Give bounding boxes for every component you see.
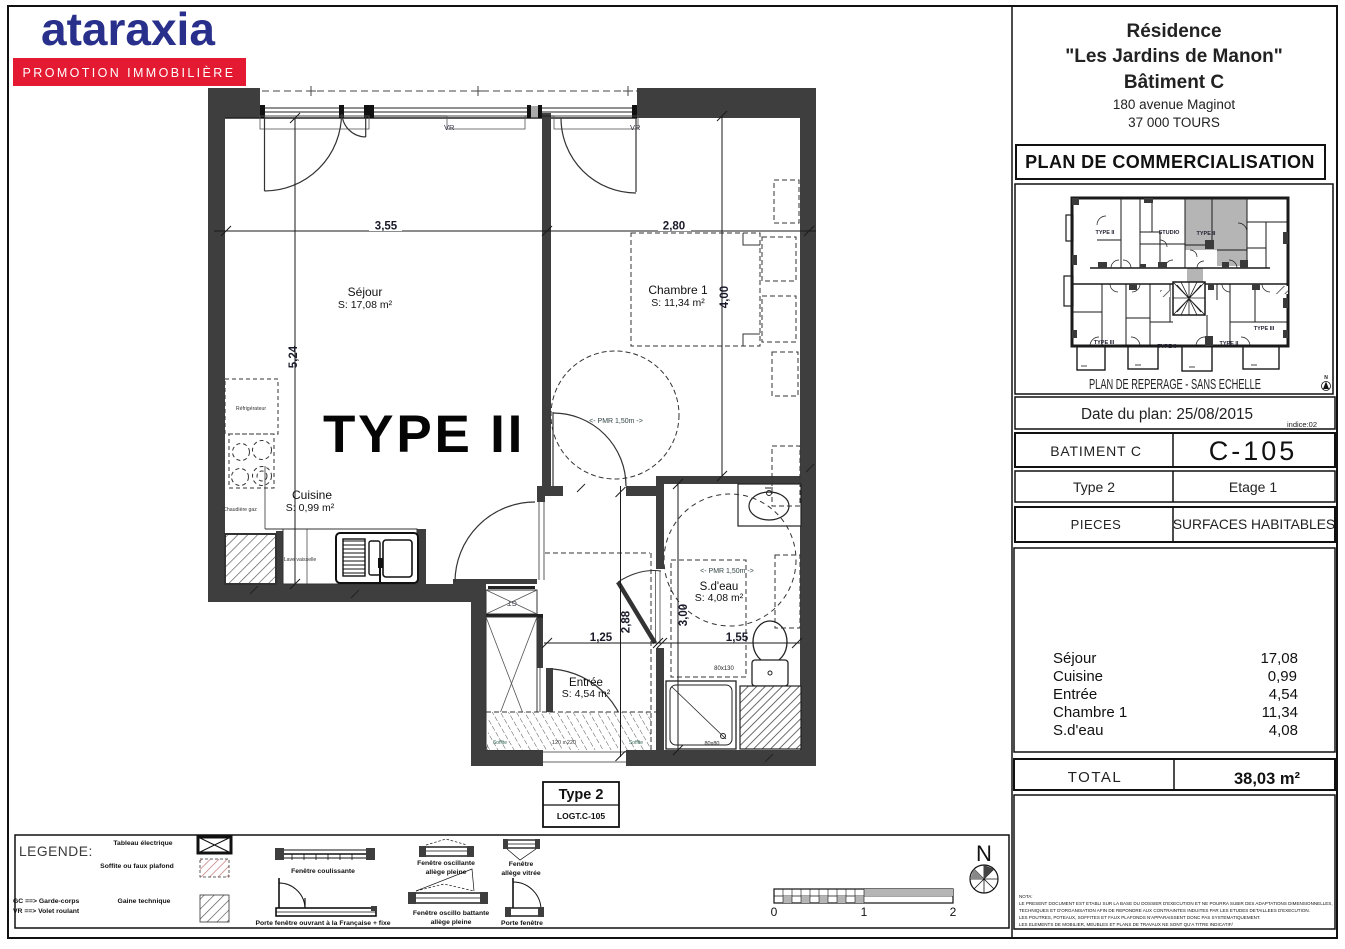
svg-text:SURFACES HABITABLES: SURFACES HABITABLES xyxy=(1173,517,1335,532)
svg-text:Cuisine: Cuisine xyxy=(292,488,332,502)
svg-text:Cuisine: Cuisine xyxy=(1053,668,1103,685)
svg-text:38,03 m²: 38,03 m² xyxy=(1234,770,1301,788)
svg-text:5,24: 5,24 xyxy=(288,345,300,368)
svg-text:80x80: 80x80 xyxy=(705,741,720,747)
svg-text:PROMOTION IMMOBILIÈRE: PROMOTION IMMOBILIÈRE xyxy=(23,65,236,80)
svg-text:Gaine technique: Gaine technique xyxy=(118,898,171,905)
svg-text:S: 0,99 m²: S: 0,99 m² xyxy=(286,502,335,514)
svg-text:Résidence: Résidence xyxy=(1126,21,1221,42)
svg-text:<- PMR 1,50m ->: <- PMR 1,50m -> xyxy=(589,418,643,425)
svg-text:LES POUTRES, POTEAUX, SOFFITES: LES POUTRES, POTEAUX, SOFFITES ET FAUX P… xyxy=(1019,915,1260,920)
svg-text:Chambre 1: Chambre 1 xyxy=(1053,704,1127,721)
svg-text:C-105: C-105 xyxy=(1209,436,1298,466)
svg-text:0: 0 xyxy=(771,905,778,919)
svg-text:Séjour: Séjour xyxy=(348,285,383,299)
svg-text:STUDIO: STUDIO xyxy=(1159,230,1181,236)
svg-text:Lave vaisselle: Lave vaisselle xyxy=(284,557,317,563)
svg-text:S: 11,34 m²: S: 11,34 m² xyxy=(651,297,705,309)
svg-text:Soffite ou faux plafond: Soffite ou faux plafond xyxy=(100,863,174,870)
svg-text:120 x 220: 120 x 220 xyxy=(552,740,576,746)
svg-text:LES ELEMENTS DE MOBILIER, MEUB: LES ELEMENTS DE MOBILIER, MEUBLES ET PLA… xyxy=(1019,922,1234,927)
svg-text:Type 2: Type 2 xyxy=(1073,479,1115,495)
svg-text:S: 17,08 m²: S: 17,08 m² xyxy=(338,299,393,311)
svg-text:TYPE II: TYPE II xyxy=(1158,344,1177,350)
svg-text:Fenêtre oscillante: Fenêtre oscillante xyxy=(417,860,475,867)
svg-text:PIECES: PIECES xyxy=(1071,517,1122,532)
svg-text:4,00: 4,00 xyxy=(719,286,731,308)
svg-text:Tableau électrique: Tableau électrique xyxy=(113,840,172,847)
svg-text:TECHNIQUES ET D'ORGANISATION A: TECHNIQUES ET D'ORGANISATION AFIN DE REP… xyxy=(1019,908,1310,913)
svg-text:Fenêtre: Fenêtre xyxy=(509,861,534,868)
svg-text:VR ==> Volet roulant: VR ==> Volet roulant xyxy=(13,908,80,915)
svg-text:3,55: 3,55 xyxy=(375,221,398,233)
svg-text:4,54: 4,54 xyxy=(1269,686,1298,703)
svg-text:180 avenue Maginot: 180 avenue Maginot xyxy=(1113,97,1236,112)
svg-text:4,08: 4,08 xyxy=(1269,722,1298,739)
svg-text:Porte fenêtre ouvrant à la Fra: Porte fenêtre ouvrant à la Française + f… xyxy=(255,920,390,927)
svg-text:Date du plan: 25/08/2015: Date du plan: 25/08/2015 xyxy=(1081,406,1253,423)
svg-text:Fenêtre coulissante: Fenêtre coulissante xyxy=(291,868,355,875)
svg-text:17,08: 17,08 xyxy=(1260,650,1298,667)
svg-text:<- PMR 1,50m ->: <- PMR 1,50m -> xyxy=(700,568,754,575)
svg-text:TYPE III: TYPE III xyxy=(1254,326,1275,332)
svg-text:TYPE II: TYPE II xyxy=(1096,230,1115,236)
svg-text:Chambre 1: Chambre 1 xyxy=(648,283,708,297)
svg-text:Réfrigérateur: Réfrigérateur xyxy=(236,406,267,412)
svg-text:Type 2: Type 2 xyxy=(559,787,604,803)
svg-text:37 000 TOURS: 37 000 TOURS xyxy=(1128,115,1220,130)
svg-text:LE PRESENT DOCUMENT EST ETABLI: LE PRESENT DOCUMENT EST ETABLI SUR LA BA… xyxy=(1019,901,1333,906)
svg-text:LOGT.C-105: LOGT.C-105 xyxy=(557,811,605,821)
svg-text:2,80: 2,80 xyxy=(663,221,685,233)
svg-text:S: 4,54 m²: S: 4,54 m² xyxy=(562,688,611,700)
svg-text:3,00: 3,00 xyxy=(678,604,690,626)
svg-text:1,25: 1,25 xyxy=(590,632,613,644)
svg-text:allège pleine: allège pleine xyxy=(431,919,472,926)
svg-text:1,55: 1,55 xyxy=(726,632,749,644)
svg-text:NOTA:: NOTA: xyxy=(1019,894,1033,899)
svg-text:Etage 1: Etage 1 xyxy=(1229,479,1277,495)
svg-text:1: 1 xyxy=(861,905,868,919)
svg-text:TYPE III: TYPE III xyxy=(1094,340,1115,346)
svg-text:allège pleine: allège pleine xyxy=(426,869,467,876)
svg-text:Chaudière gaz: Chaudière gaz xyxy=(223,507,257,513)
svg-text:PLAN DE REPERAGE - SANS ECHELL: PLAN DE REPERAGE - SANS ECHELLE xyxy=(1089,377,1261,393)
svg-text:2,88: 2,88 xyxy=(621,610,633,633)
svg-text:Séjour: Séjour xyxy=(1053,650,1096,667)
svg-text:allège vitrée: allège vitrée xyxy=(501,870,541,877)
svg-text:TYPE II: TYPE II xyxy=(1197,231,1216,237)
svg-text:0,99: 0,99 xyxy=(1268,668,1297,685)
svg-text:GC ==> Garde-corps: GC ==> Garde-corps xyxy=(13,898,80,905)
svg-text:TYPE II: TYPE II xyxy=(1220,341,1239,347)
svg-text:indice:02: indice:02 xyxy=(1287,420,1317,429)
svg-text:Soffite: Soffite xyxy=(629,740,643,746)
svg-text:Soffite: Soffite xyxy=(493,740,507,746)
svg-text:PLAN DE COMMERCIALISATION: PLAN DE COMMERCIALISATION xyxy=(1025,152,1315,172)
svg-text:TOTAL: TOTAL xyxy=(1068,769,1122,786)
svg-text:BATIMENT C: BATIMENT C xyxy=(1050,443,1142,459)
svg-text:N: N xyxy=(1324,375,1328,381)
svg-text:11,34: 11,34 xyxy=(1262,704,1298,721)
svg-text:N: N xyxy=(976,841,992,866)
svg-text:2: 2 xyxy=(950,905,957,919)
svg-text:S: 4,08 m²: S: 4,08 m² xyxy=(695,592,744,604)
svg-text:Fenêtre oscillo battante: Fenêtre oscillo battante xyxy=(413,910,490,917)
svg-text:S.d'eau: S.d'eau xyxy=(1053,722,1103,739)
svg-text:LEGENDE:: LEGENDE: xyxy=(19,844,93,859)
svg-text:Bâtiment C: Bâtiment C xyxy=(1124,72,1225,93)
svg-text:"Les Jardins de Manon": "Les Jardins de Manon" xyxy=(1065,46,1283,67)
svg-text:80x130: 80x130 xyxy=(714,666,734,672)
svg-text:ataraxia: ataraxia xyxy=(41,3,215,55)
svg-text:GT: GT xyxy=(506,599,516,606)
svg-text:TYPE II: TYPE II xyxy=(323,405,525,464)
svg-text:VR: VR xyxy=(444,123,455,132)
svg-text:Porte fenêtre: Porte fenêtre xyxy=(501,920,543,927)
svg-text:Entrée: Entrée xyxy=(1053,686,1097,703)
